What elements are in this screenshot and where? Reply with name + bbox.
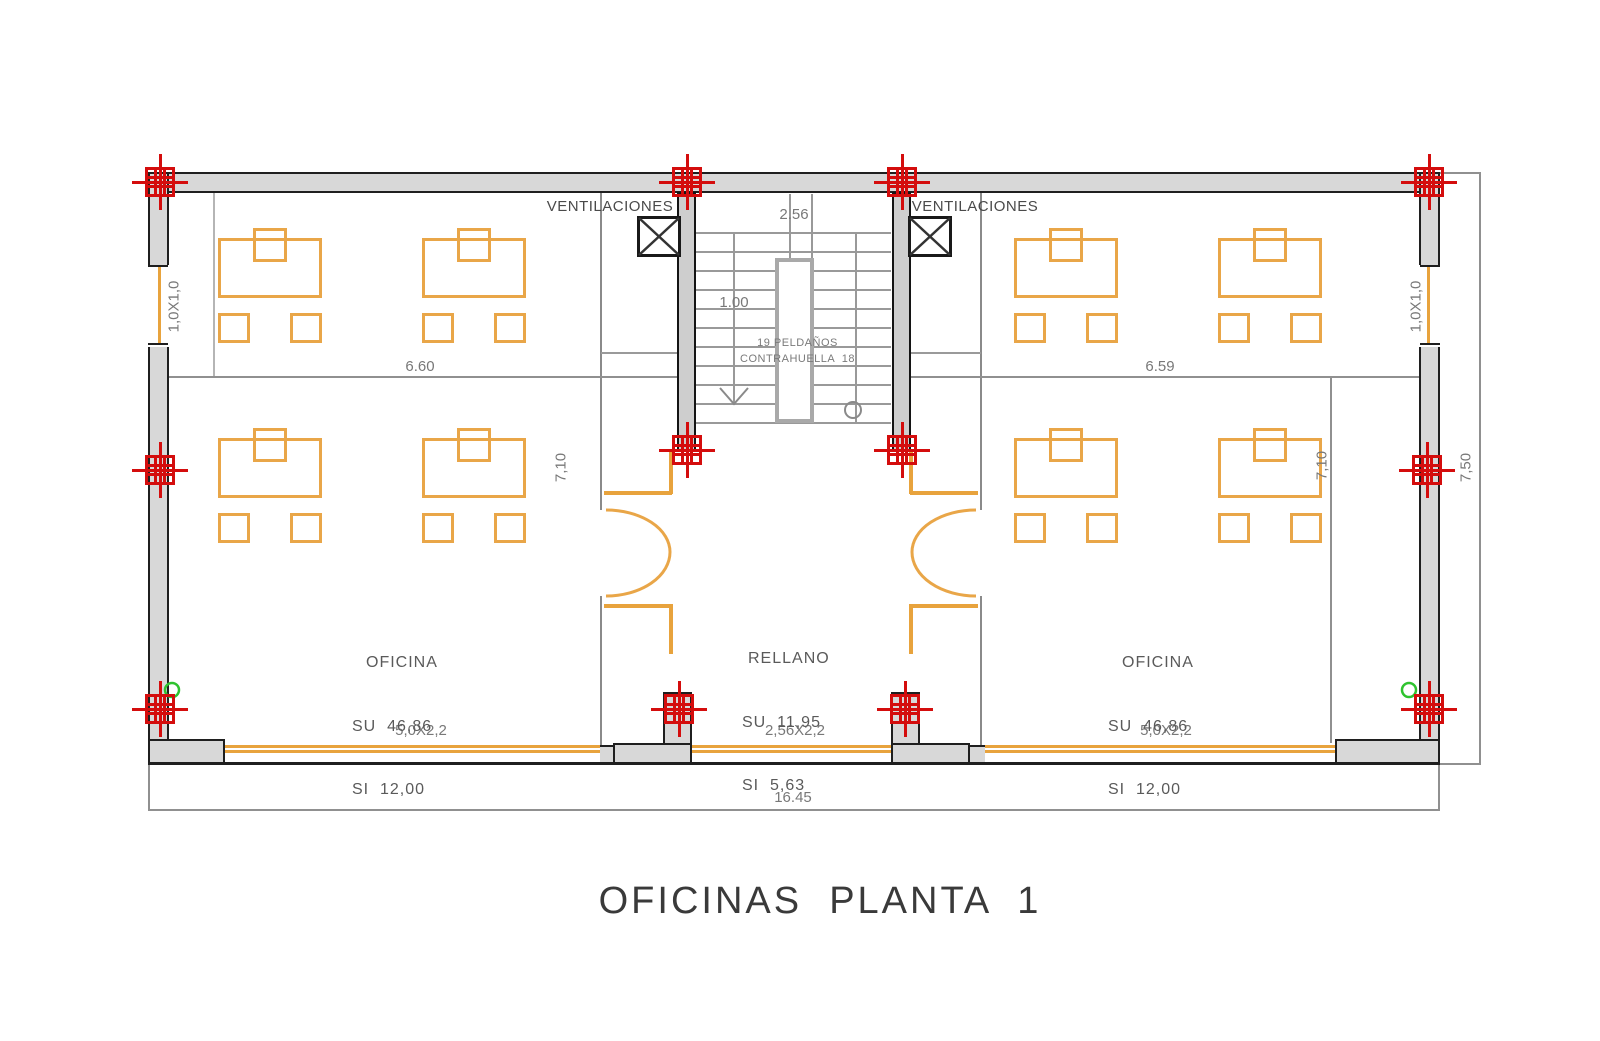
dim-line-office-left — [168, 376, 686, 378]
desk-drawer — [1290, 313, 1322, 343]
desk-chair — [1049, 428, 1083, 462]
partition-right-upper — [980, 192, 982, 510]
column-marker-icon — [1414, 167, 1444, 197]
landing-label: RELLANO SU 11,95 SI 5,63 — [742, 606, 830, 838]
column-marker-icon — [145, 167, 175, 197]
stair-tread — [696, 251, 891, 253]
ventilaciones-label-right: VENTILACIONES — [905, 198, 1045, 215]
column-marker-icon — [887, 167, 917, 197]
desk-drawer — [218, 313, 250, 343]
desk-drawer — [1086, 313, 1118, 343]
desk-drawer — [494, 313, 526, 343]
stair-tread — [696, 232, 891, 234]
dim-ext-bottom-left2 — [148, 765, 150, 809]
window-left-glass — [158, 267, 161, 345]
window-side-left-dim: 1,0X1,0 — [166, 272, 183, 342]
landing-name: RELLANO — [742, 648, 830, 669]
column-marker-icon — [890, 694, 920, 724]
office-left-width-dim: 6.60 — [390, 358, 450, 375]
desk-chair — [457, 228, 491, 262]
stair-stringer-left — [733, 232, 735, 404]
office-right-si: SI 12,00 — [1108, 779, 1194, 800]
desk-drawer — [422, 513, 454, 543]
office-left-label: OFICINA SU 46,86 SI 12,00 — [352, 610, 438, 842]
column-marker-icon — [1412, 455, 1442, 485]
column-marker-icon — [145, 694, 175, 724]
alcove-right-head — [910, 491, 978, 495]
dim-ext-bottom-right2 — [1438, 765, 1440, 809]
column-marker-icon — [887, 435, 917, 465]
window-right-jamb-bottom — [1420, 343, 1440, 345]
column-marker-icon — [1414, 694, 1444, 724]
alcove-right-jamb-lower — [909, 604, 913, 654]
partition-left-upper — [600, 192, 602, 510]
stair-note-line1: 19 PELDAÑOS — [725, 337, 870, 349]
ventilaciones-label-left: VENTILACIONES — [540, 198, 680, 215]
window-left-jamb-top — [148, 265, 168, 267]
partition-right-lower — [980, 596, 982, 745]
dim-line-office-right — [902, 376, 1420, 378]
interior-height-left-dim: 7,10 — [553, 440, 570, 496]
office-right-label: OFICINA SU 46,86 SI 12,00 — [1108, 610, 1194, 842]
desk-chair — [253, 228, 287, 262]
stair-note-line2: CONTRAHUELLA 18 — [725, 353, 870, 365]
office-right-name: OFICINA — [1108, 652, 1194, 673]
office-left-si: SI 12,00 — [352, 779, 438, 800]
desk-drawer — [494, 513, 526, 543]
desk-chair — [1253, 228, 1287, 262]
desk-chair — [457, 428, 491, 462]
alcove-right-sill — [910, 604, 978, 608]
stair-flight-dim: 1.00 — [704, 294, 764, 311]
dim-ext-top-right — [1440, 172, 1480, 174]
desk-drawer — [1218, 313, 1250, 343]
desk-chair — [1049, 228, 1083, 262]
office-left-su: SU 46,86 — [352, 716, 438, 737]
door-swing-arcs — [606, 510, 976, 596]
floor-plan-canvas: VENTILACIONES VENTILACIONES 2.56 1.00 19… — [0, 0, 1600, 1041]
window-right-jamb-top — [1420, 265, 1440, 267]
desk-drawer — [1014, 513, 1046, 543]
column-marker-icon — [664, 694, 694, 724]
landing-su: SU 11,95 — [742, 712, 830, 733]
landing-si: SI 5,63 — [742, 775, 830, 796]
office-left-name: OFICINA — [352, 652, 438, 673]
stair-width-dim: 2.56 — [764, 206, 824, 223]
alcove-left-sill — [604, 604, 672, 608]
alcove-left-head — [604, 491, 672, 495]
desk-drawer — [1218, 513, 1250, 543]
column-marker-icon — [672, 435, 702, 465]
desk-drawer — [1014, 313, 1046, 343]
total-height-dim: 7,50 — [1458, 440, 1475, 496]
window-left-jamb-bottom — [148, 343, 168, 345]
extension-line — [213, 192, 215, 377]
vent-shaft-right — [908, 216, 952, 257]
dim-line-total-height — [1479, 172, 1481, 765]
strip-line-left — [601, 352, 678, 354]
desk-drawer — [1290, 513, 1322, 543]
column-marker-icon — [672, 167, 702, 197]
wall-top — [148, 172, 1440, 193]
desk-drawer — [218, 513, 250, 543]
window-right-glass — [1427, 267, 1430, 345]
office-right-su: SU 46,86 — [1108, 716, 1194, 737]
vent-shaft-left — [637, 216, 681, 257]
desk-drawer — [290, 313, 322, 343]
strip-line-right — [911, 352, 981, 354]
partition-left-lower — [600, 596, 602, 745]
desk-chair — [1253, 428, 1287, 462]
desk-drawer — [422, 313, 454, 343]
dim-ext-bottom-right — [1440, 763, 1480, 765]
desk-drawer — [1086, 513, 1118, 543]
drawing-title: OFICINAS PLANTA 1 — [320, 880, 1320, 923]
column-marker-icon — [145, 455, 175, 485]
alcove-left-jamb-lower — [669, 604, 673, 654]
desk-drawer — [290, 513, 322, 543]
interior-height-right-dim: 7,10 — [1314, 438, 1331, 494]
window-side-right-dim: 1,0X1,0 — [1408, 272, 1425, 342]
dim-line-710-right — [1330, 377, 1332, 743]
office-right-width-dim: 6.59 — [1130, 358, 1190, 375]
desk-chair — [253, 428, 287, 462]
